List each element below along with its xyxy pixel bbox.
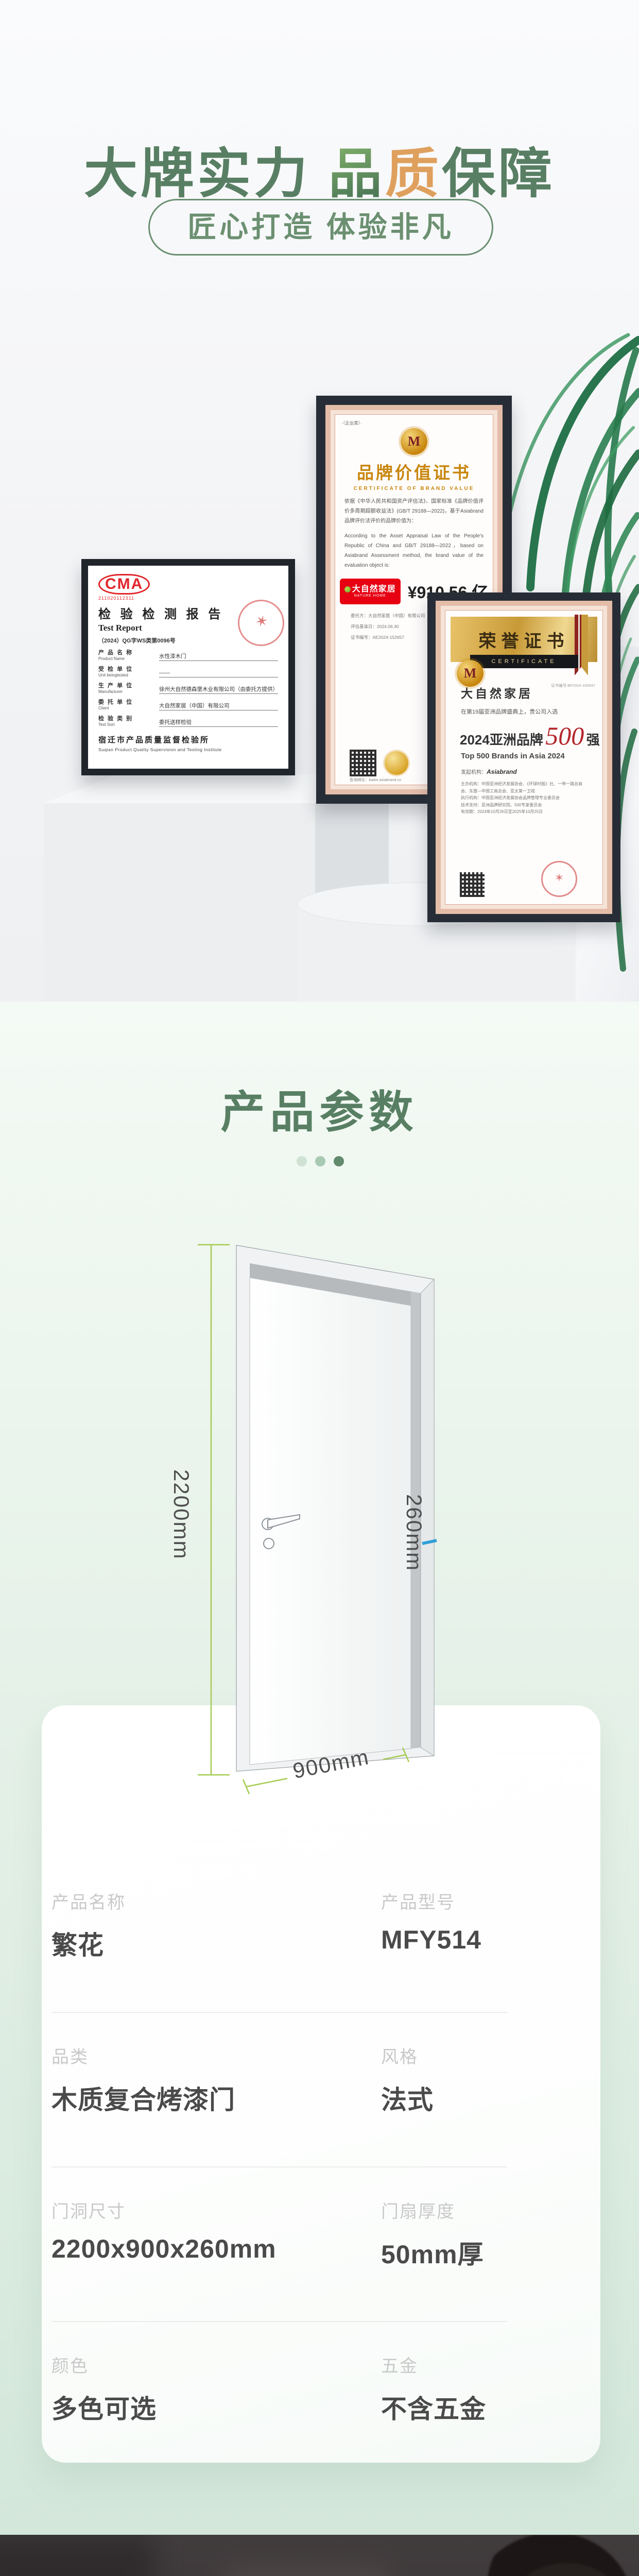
qr-code-icon [350,750,376,776]
hero-title: 大牌实力 品质保障 [0,130,639,208]
door-depth-label: 260mm [402,1494,426,1571]
param-cell: 风格法式 [381,2043,434,2116]
param-cell: 门扇厚度50mm厚 [381,2197,484,2271]
divider [51,2012,507,2013]
brand-value-title-en: CERTIFICATE OF BRAND VALUE [335,486,493,492]
brand-value-title: 品牌价值证书 [335,459,493,484]
param-cell: 五金不含五金 [381,2352,486,2426]
nature-home-logo: 大自然家居 NATURE HOME [340,579,401,604]
brand-value-paragraph-cn: 依据《中华人民共和国资产评估法》、国家标准《品牌价值评价多周期超额收益法》(GB… [344,497,483,526]
service-photo-background [0,2535,639,2576]
param-cell: 品类木质复合烤漆门 [51,2043,235,2116]
honor-award: 2024亚洲品牌 500 强 [460,721,602,751]
hero-title-seg3: 质 [385,144,442,204]
gold-medal-icon: M [335,428,493,455]
red-stamp-icon: ✶ [541,861,577,897]
report-field: 生 产 单 位Manufacturer 徐州大自然德森堡木业有限公司（由委托方提… [98,681,278,694]
divider [51,2321,507,2322]
section-service: 金保姆服务 全国1000+实体门店支持 咨询下单 › 上门量尺 › [0,2535,639,2576]
brand-value-site: 查询网址：baike.asiabrand.cn [350,777,401,783]
report-field: 委 托 单 位Client 大自然家居（中国）有限公司 [98,698,278,710]
hero-title-seg1: 大牌实力 [84,144,329,204]
honor-cert-number: 证书编号:BF2024-100047 [551,683,595,688]
cma-number: 211020112311 [98,596,278,601]
certificate-honor: 荣誉证书 CERTIFICATE M 证书编号:BF2024-100047 大自… [427,592,620,922]
door-diagram: 2200mm 260mm [165,1206,453,1814]
door-height-label: 2200mm [169,1469,194,1560]
brand-value-category: ·（企业类）· [341,420,362,426]
divider [51,2166,507,2167]
dot [315,1156,325,1166]
certificate-test-report: CMA 211020112311 检 验 检 测 报 告 Test Report… [81,559,295,775]
dot [297,1156,307,1166]
nature-home-dot-icon [344,586,351,592]
testing-institute: 宿迁市产品质量监督检验所 [98,734,278,745]
customer-service-agent [463,2535,639,2576]
cma-logo: CMA [98,574,278,595]
report-field: 检 验 类 别Test Sort 委托送样检验 [98,714,278,727]
honor-award-en: Top 500 Brands in Asia 2024 [461,752,602,760]
param-cell: 产品型号MFY514 [381,1888,481,1955]
param-cell: 颜色多色可选 [51,2352,157,2426]
param-cell: 产品名称繁花 [51,1888,126,1962]
gold-seal-icon [385,751,408,775]
gold-medal-icon: M [457,660,483,687]
title-dots [297,1156,344,1166]
dot [334,1156,344,1166]
hero-subtitle-pill: 匠心打造 体验非凡 [148,199,493,256]
report-field: 产 品 名 称Product Name 水性漆木门 [98,648,278,661]
honor-certificate-band: CERTIFICATE [470,655,578,668]
promo-page: 大牌实力 品质保障 匠心打造 体验非凡 [0,0,639,2576]
honor-issuer: 发起机构：Asiabrand [461,768,602,775]
section-brand-strength: 大牌实力 品质保障 匠心打造 体验非凡 [0,0,639,1002]
parameters-title: 产品参数 [0,1076,639,1140]
brand-value-paragraph-en: According to the Asset Appraisal Law of … [344,531,483,570]
hero-title-seg2: 品 [329,144,385,204]
param-cell: 门洞尺寸2200x900x260mm [51,2197,277,2264]
testing-institute-en: Suqian Product Quality Supervision and T… [98,747,278,752]
qr-code-icon [460,872,485,897]
honor-line: 在第19届亚洲品牌盛典上，贵公司入选 [461,707,602,716]
section-product-parameters: 产品参数 2200mm [0,1002,639,2535]
report-field: 受 检 单 位Unit beingtested —— [98,665,278,677]
hero-title-seg4: 保障 [442,144,555,204]
honor-details: 主办机构：中国亚洲经济发展协会、《环球时报》社、一带一路总商会、东盟—中国工商总… [461,781,588,816]
